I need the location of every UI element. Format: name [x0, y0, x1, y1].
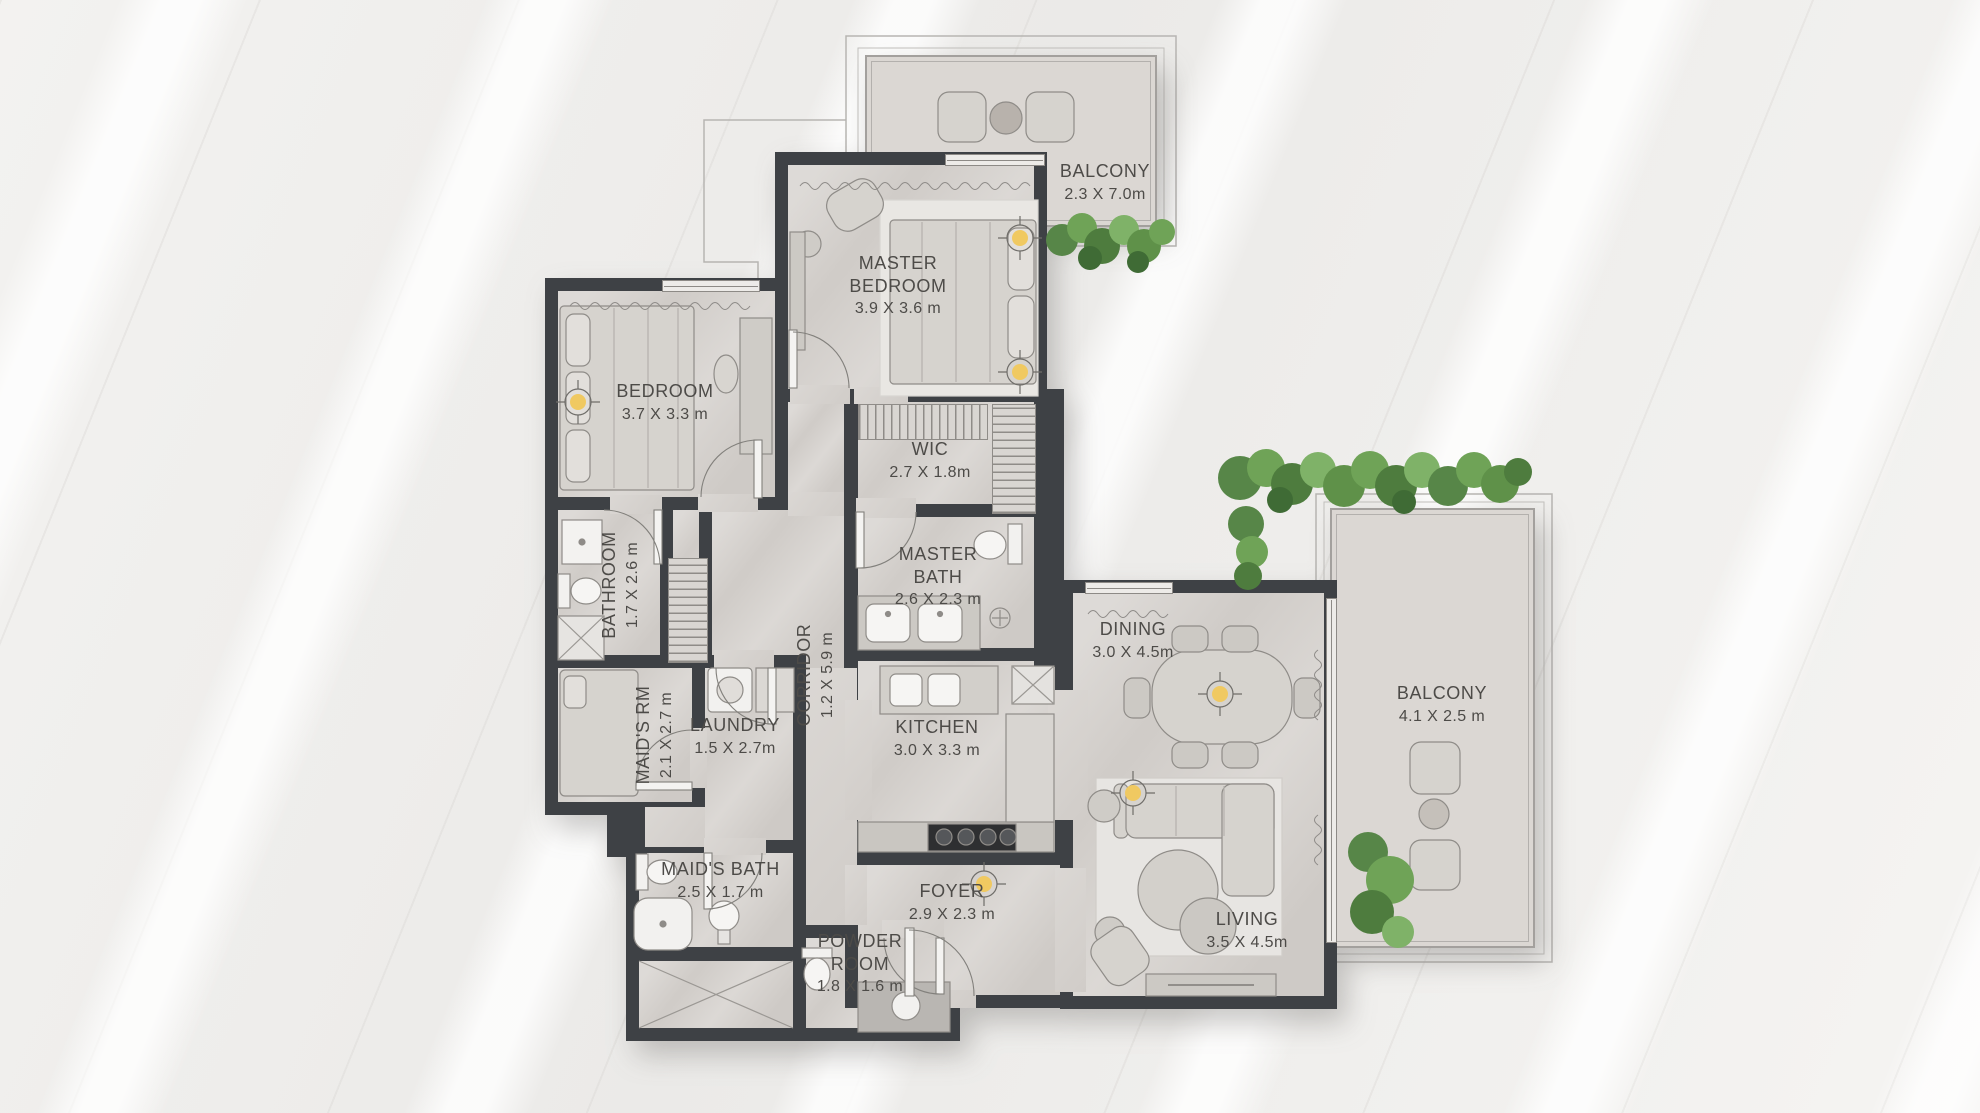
room-label-kitchen: KITCHEN 3.0 X 3.3 m: [857, 716, 1017, 761]
door-opening-master-bedroom: [790, 385, 850, 404]
room-dims: 1.5 X 2.7m: [694, 739, 775, 759]
door-opening-laundry: [714, 650, 774, 668]
room-name: DINING: [1100, 618, 1167, 641]
wall-chunk-step: [607, 802, 647, 857]
wic-hanging-rail: [858, 404, 988, 440]
room-name: MASTER BATH: [891, 543, 986, 588]
room-label-powder-room: POWDER ROOM 1.8 X 1.6 m: [795, 930, 925, 997]
room-label-balcony-right: BALCONY 4.1 X 2.5 m: [1362, 682, 1522, 727]
room-name: LAUNDRY: [690, 714, 780, 737]
window-master-bedroom: [945, 154, 1045, 166]
room-name: KITCHEN: [895, 716, 978, 739]
room-name: BALCONY: [1060, 160, 1150, 183]
room-label-dining: DINING 3.0 X 4.5m: [1063, 618, 1203, 663]
room-dims: 1.8 X 1.6 m: [817, 977, 903, 997]
window-dining: [1085, 582, 1173, 594]
room-name: FOYER: [919, 880, 984, 903]
room-label-wic: WIC 2.7 X 1.8m: [870, 438, 990, 483]
opening-bedroom-wic: [854, 387, 908, 404]
room-name: CORRIDOR: [793, 624, 816, 727]
room-label-master-bedroom: MASTER BEDROOM 3.9 X 3.6 m: [808, 252, 988, 319]
room-dims: 3.7 X 3.3 m: [622, 405, 708, 425]
room-name: POWDER ROOM: [810, 930, 910, 975]
room-label-bedroom: BEDROOM 3.7 X 3.3 m: [575, 380, 755, 425]
room-dims: 2.7 X 1.8m: [889, 463, 970, 483]
floor-plan-page: { "rooms": [ {"id":"balcony-top","name":…: [0, 0, 1980, 1113]
room-name: BATHROOM: [598, 531, 621, 638]
room-name: BEDROOM: [616, 380, 713, 403]
door-opening-bedroom: [698, 494, 758, 512]
room-name: MAID'S BATH: [661, 858, 780, 881]
room-label-bathroom: BATHROOM 1.7 X 2.6 m: [598, 510, 642, 660]
wic-shelves: [992, 404, 1036, 514]
glass-wall-balcony: [1326, 598, 1337, 943]
room-label-living: LIVING 3.5 X 4.5m: [1162, 908, 1332, 953]
room-dims: 2.9 X 2.3 m: [909, 905, 995, 925]
room-dims: 2.5 X 1.7 m: [677, 883, 763, 903]
room-dims: 2.3 X 7.0m: [1064, 185, 1145, 205]
room-dims: 4.1 X 2.5 m: [1399, 707, 1485, 727]
room-name: MAID'S RM: [632, 686, 655, 785]
room-name: WIC: [912, 438, 949, 461]
room-label-balcony-top: BALCONY 2.3 X 7.0m: [1040, 160, 1170, 205]
room-shaft: [626, 948, 806, 1041]
opening-corridor-mid: [788, 492, 844, 516]
room-label-maids-bath: MAID'S BATH 2.5 X 1.7 m: [633, 858, 808, 903]
room-dims: 3.5 X 4.5m: [1206, 933, 1287, 953]
opening-corridor-foyer: [845, 865, 867, 925]
window-bedroom: [662, 280, 760, 292]
room-label-master-bath: MASTER BATH 2.6 X 2.3 m: [858, 543, 1018, 610]
room-name: LIVING: [1216, 908, 1279, 931]
room-dims: 2.6 X 2.3 m: [895, 590, 981, 610]
opening-foyer-living: [1055, 868, 1086, 992]
room-name: MASTER BEDROOM: [836, 252, 961, 297]
room-dims: 1.7 X 2.6 m: [623, 542, 643, 628]
room-dims: 3.9 X 3.6 m: [855, 299, 941, 319]
room-dims: 1.2 X 5.9 m: [818, 632, 838, 718]
room-label-laundry: LAUNDRY 1.5 X 2.7m: [655, 714, 815, 759]
linen-shelves: [668, 558, 708, 663]
opening-kitchen-dining: [1048, 690, 1088, 820]
floor-notch: [645, 807, 705, 847]
balcony-right-floor: [1330, 508, 1535, 948]
door-opening-master-bath: [856, 498, 916, 518]
room-dims: 3.0 X 4.5m: [1092, 643, 1173, 663]
door-opening-maids-bath: [704, 838, 766, 855]
room-label-foyer: FOYER 2.9 X 2.3 m: [872, 880, 1032, 925]
room-name: BALCONY: [1397, 682, 1487, 705]
wall-chunk-east-of-bath: [1034, 389, 1064, 667]
room-dims: 3.0 X 3.3 m: [894, 741, 980, 761]
